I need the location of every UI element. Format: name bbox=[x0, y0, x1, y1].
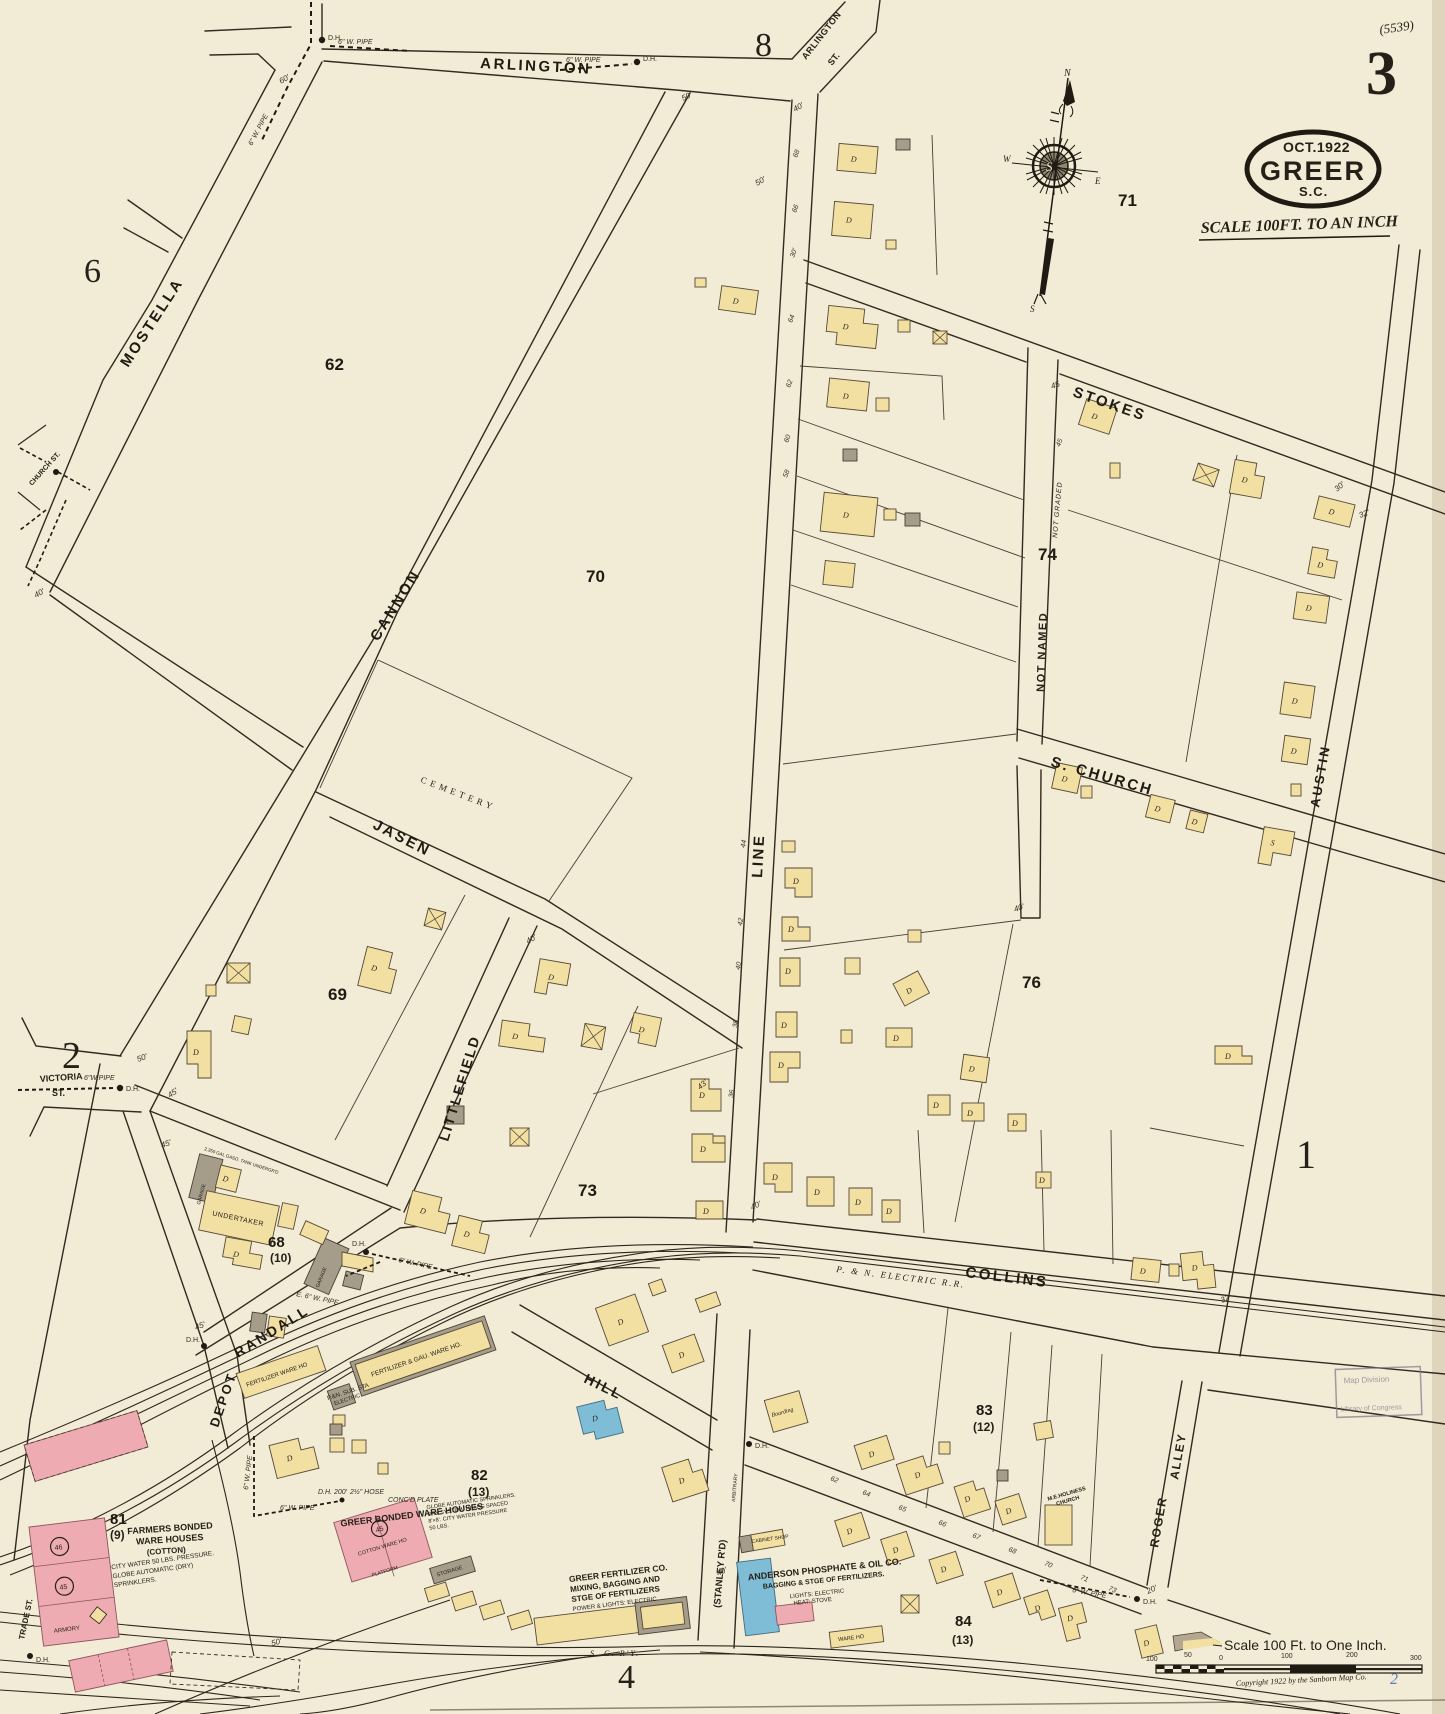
svg-text:0: 0 bbox=[1219, 1655, 1223, 1662]
svg-text:68: 68 bbox=[268, 1234, 285, 1251]
svg-text:LINE: LINE bbox=[749, 833, 768, 878]
svg-text:71: 71 bbox=[1118, 191, 1137, 210]
svg-text:D: D bbox=[1038, 1176, 1045, 1185]
svg-text:6" W. PIPE: 6" W. PIPE bbox=[566, 57, 601, 64]
svg-text:D.H.: D.H. bbox=[755, 1443, 769, 1450]
svg-text:62: 62 bbox=[325, 355, 344, 374]
svg-text:6" W. PIPE: 6" W. PIPE bbox=[338, 39, 373, 46]
svg-text:73: 73 bbox=[578, 1181, 597, 1200]
svg-text:D: D bbox=[842, 510, 850, 520]
svg-text:D: D bbox=[784, 967, 791, 976]
svg-text:6"W.PIPE: 6"W.PIPE bbox=[84, 1075, 115, 1082]
svg-text:D: D bbox=[702, 1207, 709, 1216]
svg-text:(9): (9) bbox=[110, 1528, 125, 1542]
svg-text:E: E bbox=[1094, 176, 1101, 186]
svg-text:45: 45 bbox=[59, 1584, 68, 1592]
svg-text:GREER: GREER bbox=[1260, 156, 1366, 186]
svg-text:D: D bbox=[780, 1021, 787, 1030]
svg-text:D.H.: D.H. bbox=[1143, 1599, 1157, 1606]
svg-text:CONC'D PLATE: CONC'D PLATE bbox=[388, 1497, 439, 1504]
svg-text:D: D bbox=[699, 1145, 706, 1154]
svg-text:D: D bbox=[1190, 1263, 1198, 1273]
svg-text:6" W. PIPE: 6" W. PIPE bbox=[280, 1505, 315, 1512]
svg-text:8: 8 bbox=[755, 27, 772, 64]
svg-text:S: S bbox=[1046, 159, 1053, 174]
svg-text:81: 81 bbox=[110, 1511, 127, 1528]
svg-text:D: D bbox=[1224, 1052, 1231, 1061]
svg-text:4: 4 bbox=[618, 1659, 635, 1696]
svg-text:D: D bbox=[777, 1061, 784, 1070]
svg-text:76: 76 bbox=[1022, 973, 1041, 992]
svg-text:6: 6 bbox=[84, 253, 101, 290]
svg-text:N: N bbox=[1063, 68, 1072, 79]
svg-text:50: 50 bbox=[1184, 1652, 1192, 1659]
svg-text:D: D bbox=[1011, 1119, 1018, 1128]
svg-text:100: 100 bbox=[1281, 1653, 1293, 1660]
svg-text:D: D bbox=[845, 215, 853, 225]
svg-text:D: D bbox=[966, 1109, 973, 1118]
svg-text:D: D bbox=[698, 1091, 705, 1100]
svg-text:OCT.1922: OCT.1922 bbox=[1283, 139, 1350, 155]
svg-text:74: 74 bbox=[1038, 545, 1057, 564]
svg-text:D: D bbox=[850, 154, 858, 164]
svg-text:2½" HOSE: 2½" HOSE bbox=[349, 1488, 384, 1496]
svg-text:D: D bbox=[854, 1198, 861, 1207]
svg-text:D: D bbox=[885, 1207, 892, 1216]
svg-text:40: 40 bbox=[735, 961, 743, 970]
svg-text:D: D bbox=[771, 1173, 778, 1182]
svg-text:1: 1 bbox=[1296, 1132, 1316, 1177]
svg-text:D.H.: D.H. bbox=[126, 1086, 140, 1093]
svg-text:D: D bbox=[192, 1048, 199, 1057]
svg-text:69: 69 bbox=[328, 985, 347, 1004]
svg-text:200: 200 bbox=[1346, 1652, 1358, 1659]
svg-text:Map Division: Map Division bbox=[1343, 1375, 1389, 1386]
svg-text:D.H. 200': D.H. 200' bbox=[318, 1489, 348, 1496]
svg-text:82: 82 bbox=[471, 1467, 488, 1484]
svg-text:2: 2 bbox=[1390, 1671, 1398, 1688]
svg-text:D: D bbox=[813, 1188, 820, 1197]
svg-text:D: D bbox=[841, 322, 849, 332]
svg-text:42: 42 bbox=[737, 917, 745, 926]
svg-text:(10): (10) bbox=[270, 1251, 291, 1265]
svg-text:D: D bbox=[1138, 1266, 1146, 1276]
svg-text:2: 2 bbox=[62, 1035, 81, 1077]
svg-text:D.H.: D.H. bbox=[643, 56, 657, 63]
svg-text:(13): (13) bbox=[952, 1633, 973, 1647]
svg-text:D: D bbox=[932, 1101, 939, 1110]
svg-text:D.H.: D.H. bbox=[186, 1337, 200, 1344]
svg-text:D: D bbox=[892, 1034, 899, 1043]
svg-text:36: 36 bbox=[728, 1089, 736, 1098]
svg-text:D: D bbox=[841, 391, 849, 401]
svg-text:D.H.: D.H. bbox=[36, 1657, 50, 1664]
svg-text:D.H.: D.H. bbox=[352, 1241, 366, 1248]
svg-text:3: 3 bbox=[1366, 40, 1397, 108]
svg-text:S.C.: S.C. bbox=[1299, 184, 1328, 199]
svg-text:(12): (12) bbox=[973, 1420, 994, 1434]
svg-text:S. G. R'Y.: S. G. R'Y. bbox=[590, 1649, 640, 1658]
svg-text:100: 100 bbox=[1146, 1656, 1158, 1663]
svg-text:Scale 100 Ft. to One Inch.: Scale 100 Ft. to One Inch. bbox=[1224, 1637, 1387, 1653]
svg-text:D: D bbox=[792, 877, 799, 886]
svg-text:38: 38 bbox=[732, 1019, 740, 1028]
svg-text:S: S bbox=[1030, 304, 1035, 314]
svg-text:D: D bbox=[787, 925, 794, 934]
svg-text:44: 44 bbox=[740, 839, 748, 848]
svg-text:84: 84 bbox=[955, 1613, 972, 1630]
svg-text:70: 70 bbox=[586, 567, 605, 586]
svg-text:46: 46 bbox=[54, 1544, 63, 1552]
svg-text:83: 83 bbox=[976, 1402, 993, 1419]
svg-text:300: 300 bbox=[1410, 1655, 1422, 1662]
